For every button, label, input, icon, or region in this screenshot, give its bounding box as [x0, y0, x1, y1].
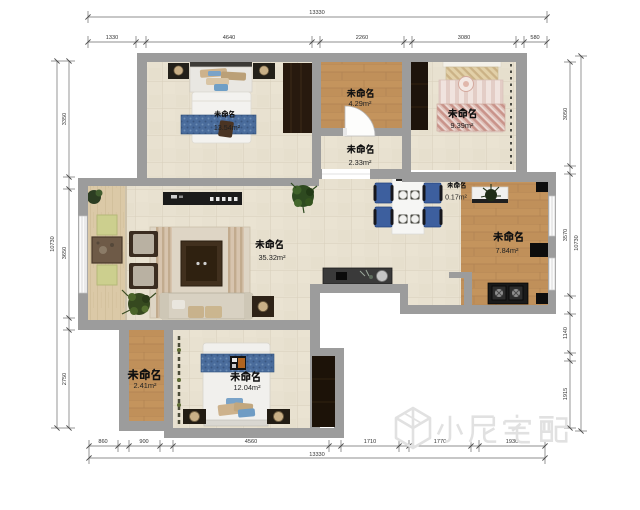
svg-text:10730: 10730 — [574, 235, 580, 251]
svg-text:13330: 13330 — [309, 452, 325, 458]
svg-text:4.29m²: 4.29m² — [348, 99, 372, 108]
svg-text:2.41m²: 2.41m² — [133, 381, 157, 390]
svg-text:7.84m²: 7.84m² — [495, 246, 519, 255]
svg-text:2.33m²: 2.33m² — [348, 158, 372, 167]
svg-text:12.04m²: 12.04m² — [233, 383, 261, 392]
svg-text:1915: 1915 — [563, 388, 569, 400]
svg-text:4560: 4560 — [245, 439, 257, 445]
svg-text:3570: 3570 — [563, 229, 569, 241]
svg-text:1710: 1710 — [364, 439, 376, 445]
svg-text:2750: 2750 — [62, 373, 68, 385]
svg-text:900: 900 — [139, 439, 148, 445]
svg-text:3050: 3050 — [563, 108, 569, 120]
svg-text:13330: 13330 — [309, 10, 325, 16]
svg-text:3080: 3080 — [458, 35, 470, 41]
svg-text:580: 580 — [530, 35, 539, 41]
svg-text:9.39m²: 9.39m² — [450, 121, 474, 130]
svg-text:35.32m²: 35.32m² — [258, 253, 286, 262]
svg-text:3650: 3650 — [62, 247, 68, 259]
svg-text:3350: 3350 — [62, 113, 68, 125]
svg-text:1140: 1140 — [563, 327, 569, 339]
svg-text:13.54m²: 13.54m² — [214, 123, 241, 132]
svg-text:860: 860 — [98, 439, 107, 445]
svg-text:1330: 1330 — [106, 35, 118, 41]
svg-text:4640: 4640 — [223, 35, 235, 41]
svg-text:0.17m²: 0.17m² — [445, 195, 467, 202]
svg-text:10730: 10730 — [50, 236, 56, 252]
svg-text:2260: 2260 — [356, 35, 368, 41]
svg-text:1770: 1770 — [434, 439, 446, 445]
